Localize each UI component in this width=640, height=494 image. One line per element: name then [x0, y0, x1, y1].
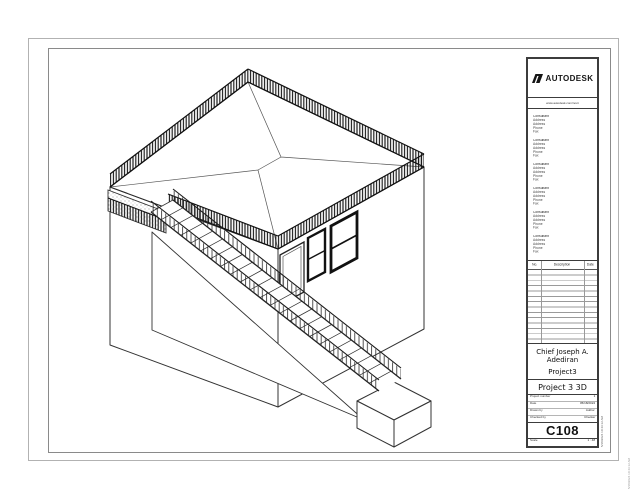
consultant-line: Fax — [533, 154, 597, 158]
consultant-section: Consultant Address Address Phone Fax Con… — [528, 109, 597, 261]
consultant-line: Fax — [533, 178, 597, 182]
field-value: 05/18/2024 — [580, 402, 595, 405]
consultant-block: Consultant Address Address Phone Fax — [533, 163, 592, 187]
field-value: Author — [586, 409, 595, 412]
fields-section: Project number 1 Date 05/18/2024 Drawn b… — [528, 395, 597, 423]
edge-plot-stamp: 5/18/2024 10:43:12 AM — [628, 458, 631, 489]
website-strip: www.autodesk.com/revit — [528, 98, 597, 109]
project-name: Project3 — [548, 368, 576, 376]
sheet-page: AUTODESK www.autodesk.com/revit Consulta… — [0, 0, 640, 494]
revision-col-date: Date — [587, 263, 594, 266]
sheet-number-text: C108 — [546, 423, 579, 438]
revision-divider — [584, 261, 585, 343]
consultant-block: Consultant Address Address Phone Fax — [533, 139, 592, 163]
field-label: Drawn by — [530, 409, 543, 412]
scale-value: 1 : 48 — [587, 439, 595, 442]
autodesk-logo-icon — [532, 74, 543, 83]
field-label: Checked by — [530, 416, 546, 419]
field-row: Checked by Checker — [528, 416, 597, 423]
isometric-3d-view — [48, 48, 524, 452]
sheet-number: C108 — [528, 423, 597, 439]
title-block: AUTODESK www.autodesk.com/revit Consulta… — [526, 57, 599, 448]
revision-col-no: No. — [532, 263, 537, 266]
window-small — [308, 229, 325, 281]
field-label: Date — [530, 402, 536, 405]
field-label: Project number — [530, 395, 550, 398]
client-project-section: Chief Joseph A. Adediran Project3 — [528, 344, 597, 380]
client-name-line2: Adediran — [547, 356, 578, 364]
consultant-line: Fax — [533, 250, 597, 254]
sheet-title-text: Project 3 3D — [538, 383, 587, 392]
consultant-line: Fax — [533, 226, 597, 230]
logo-section: AUTODESK — [528, 59, 597, 98]
scale-section: Scale 1 : 48 — [528, 439, 597, 446]
revision-rows — [528, 270, 597, 343]
consultant-block: Consultant Address Address Phone Fax — [533, 211, 592, 235]
plot-stamp: 5/18/2024 10:43:12 AM — [601, 416, 604, 447]
field-value: Checker — [584, 416, 595, 419]
website-text: www.autodesk.com/revit — [546, 101, 578, 105]
revision-divider — [541, 261, 542, 343]
field-row: Project number 1 — [528, 395, 597, 402]
field-row: Drawn by Author — [528, 409, 597, 416]
consultant-block: Consultant Address Address Phone Fax — [533, 187, 592, 211]
brand-name: AUTODESK — [546, 74, 594, 83]
scale-label: Scale — [530, 439, 538, 442]
revision-header: No. Description Date — [528, 261, 597, 270]
consultant-block: Consultant Address Address Phone Fax — [533, 235, 592, 259]
consultant-line: Fax — [533, 130, 597, 134]
consultant-line: Fax — [533, 202, 597, 206]
field-row: Date 05/18/2024 — [528, 402, 597, 409]
client-name-line1: Chief Joseph A. — [536, 348, 589, 356]
stair-base-pad — [357, 382, 431, 447]
consultant-block: Consultant Address Address Phone Fax — [533, 115, 592, 139]
revision-col-description: Description — [554, 263, 571, 266]
sheet-title: Project 3 3D — [528, 380, 597, 395]
revision-table: No. Description Date — [528, 261, 597, 344]
field-value: 1 — [593, 395, 595, 398]
